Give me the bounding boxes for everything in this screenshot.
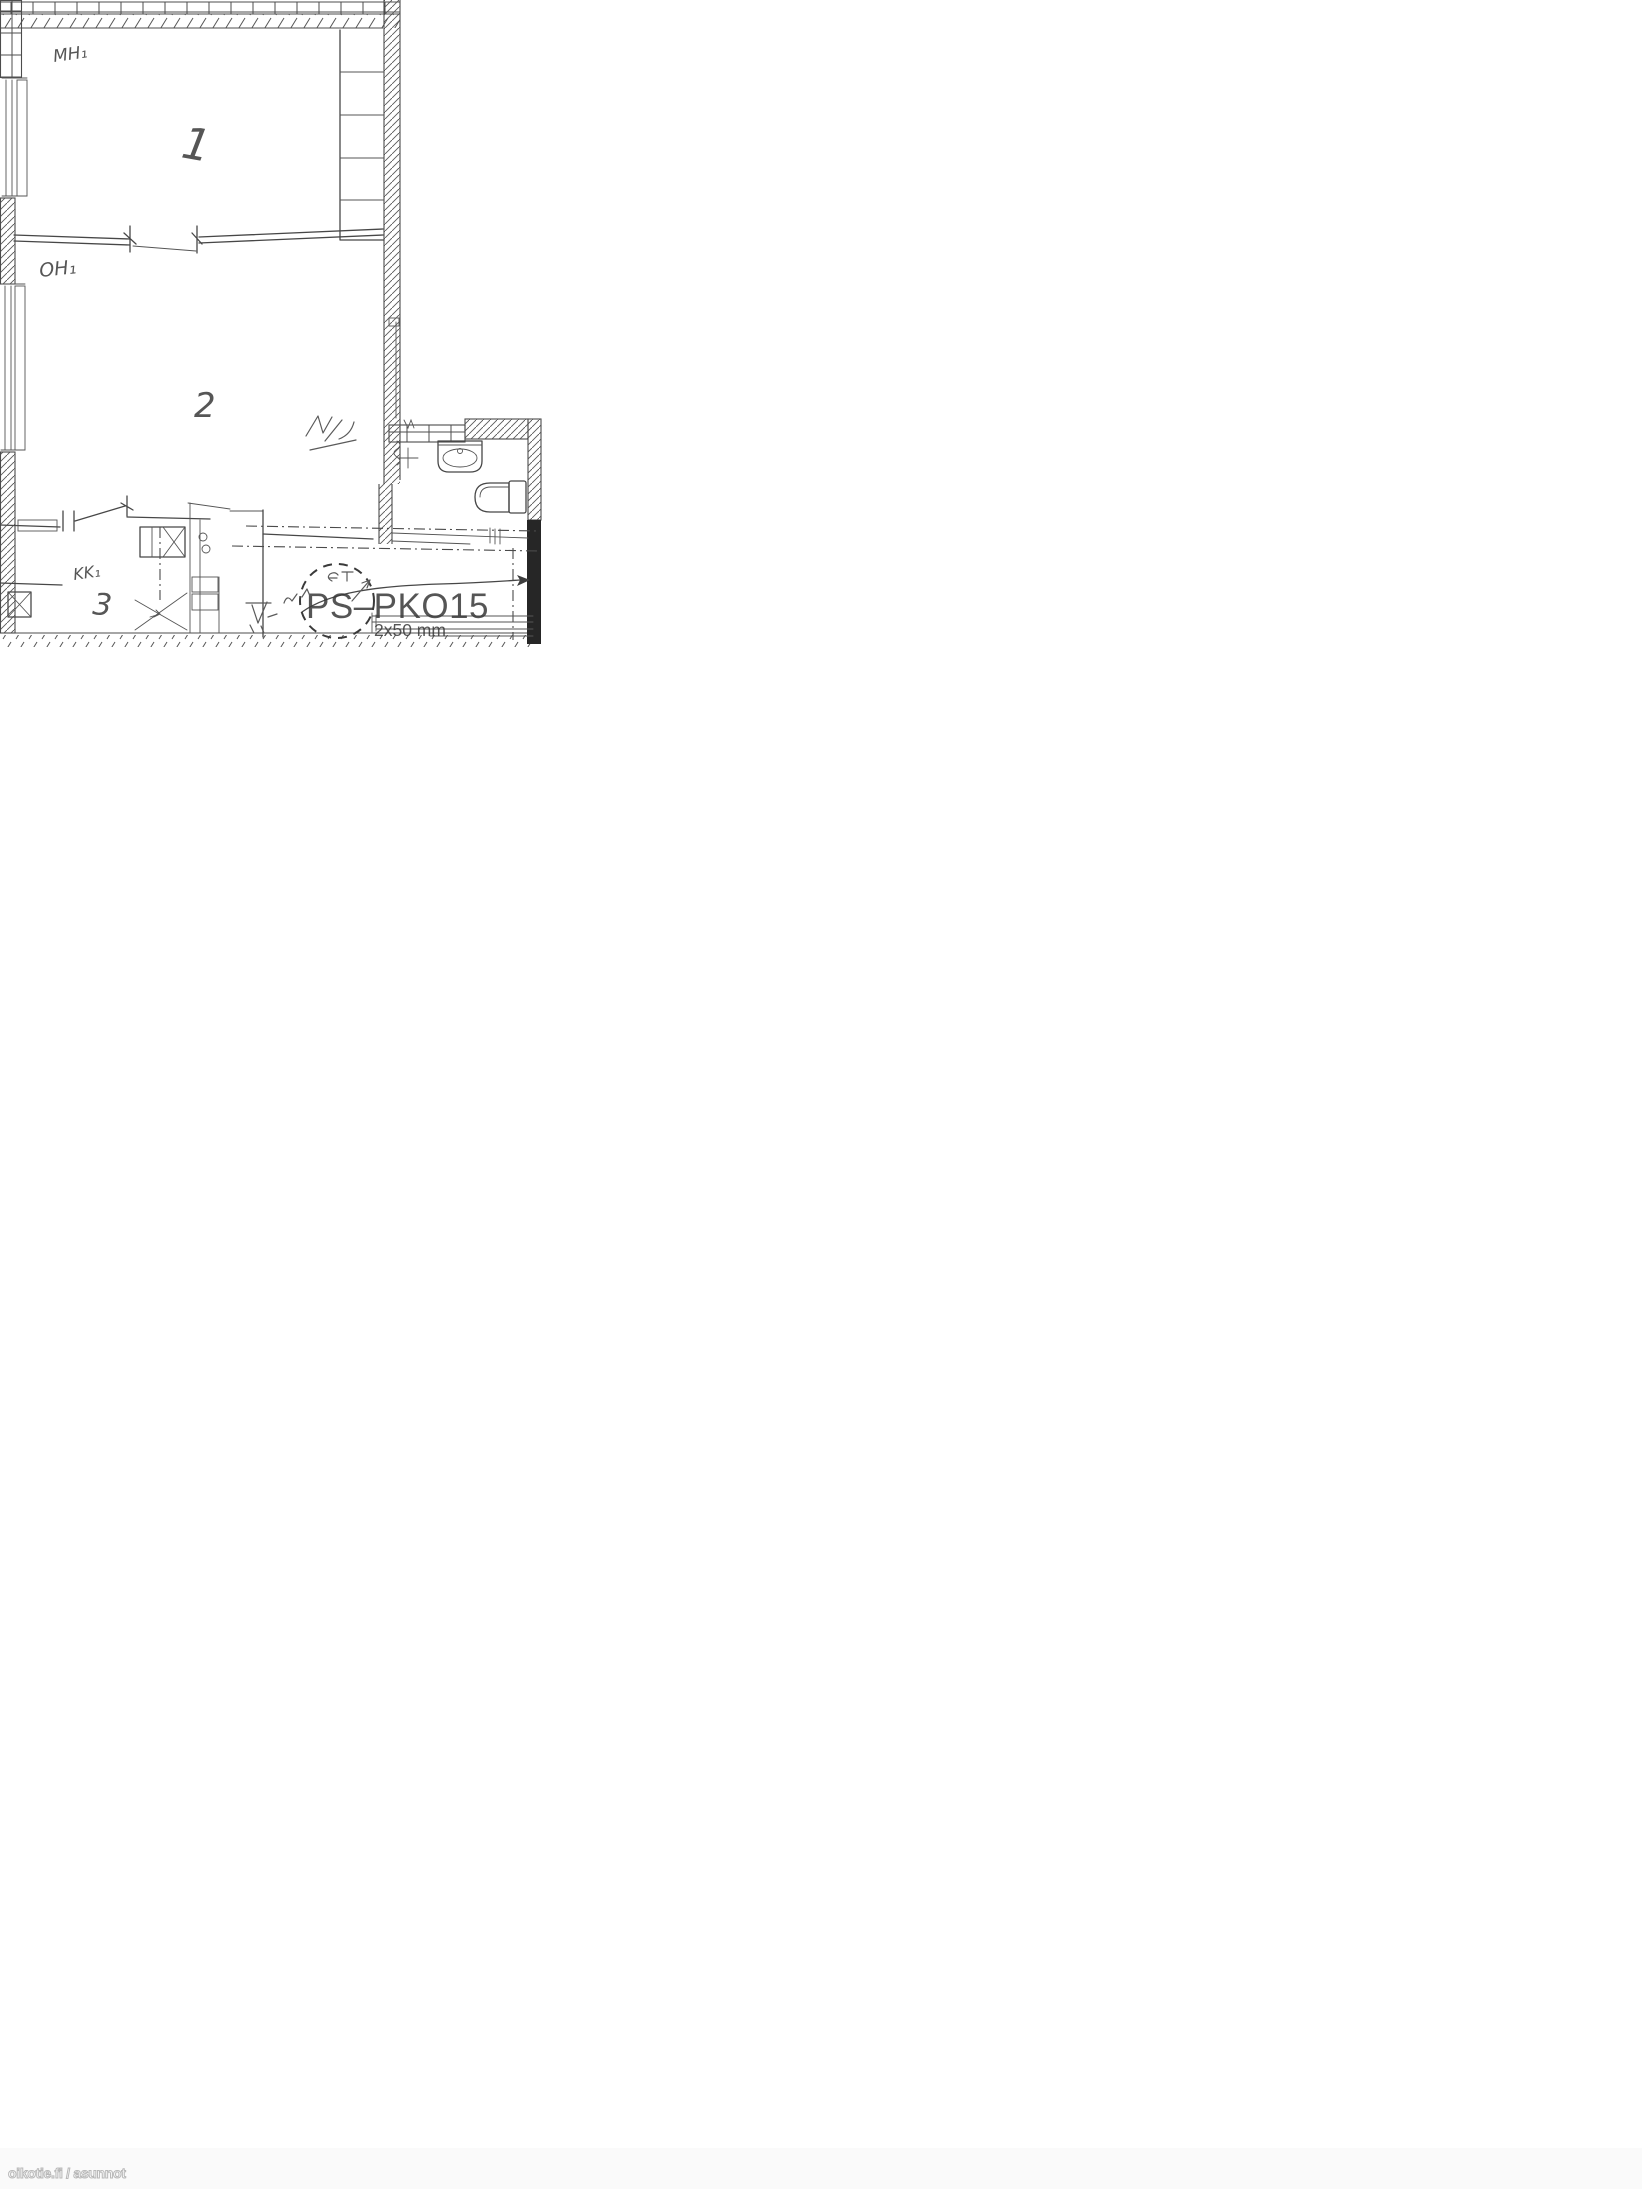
- room-label-bedroom: MH₁: [52, 42, 89, 67]
- sink: [438, 441, 482, 472]
- outer-walls: [0, 0, 540, 647]
- room-label-kitchenette: KK₁: [72, 561, 102, 584]
- room-number-kitchenette: 3: [91, 587, 113, 624]
- room-number-living: 2: [194, 386, 216, 426]
- watermark-text: oikotie.fi / asunnot: [8, 2165, 126, 2181]
- scanned-floor-plan-page: PS–PKO15 2x50 mm MH₁ 1 OH₁ 2 KK₁ 3 oikot…: [0, 0, 1642, 2189]
- room-label-living: OH₁: [38, 256, 77, 282]
- watermark: oikotie.fi / asunnot: [0, 2148, 1642, 2189]
- room-number-bedroom: 1: [178, 118, 214, 173]
- bathroom-fixtures: [392, 441, 528, 544]
- toilet: [475, 481, 526, 513]
- room-labels: MH₁ 1 OH₁ 2 KK₁ 3: [38, 42, 215, 623]
- stamp-size-note: 2x50 mm: [374, 620, 446, 640]
- floor-plan-drawing: PS–PKO15 2x50 mm MH₁ 1 OH₁ 2 KK₁ 3 oikot…: [0, 0, 1642, 2189]
